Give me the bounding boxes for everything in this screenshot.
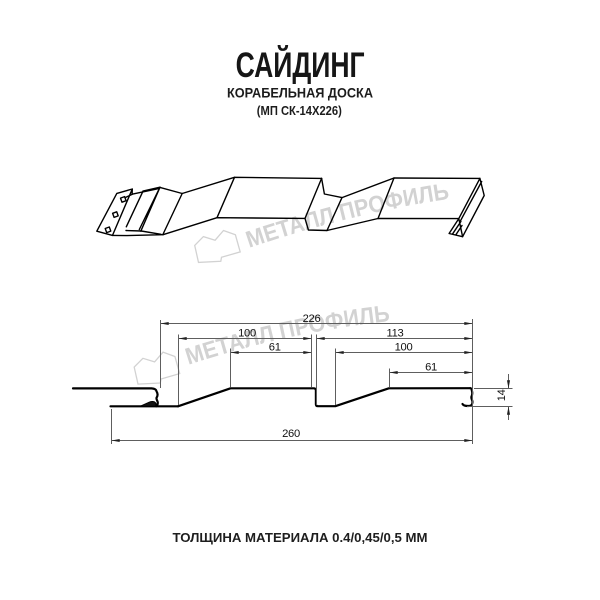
svg-text:100: 100 xyxy=(395,341,413,353)
svg-text:260: 260 xyxy=(282,428,300,440)
svg-text:САЙДИНГ: САЙДИНГ xyxy=(236,45,365,85)
svg-text:61: 61 xyxy=(425,362,437,374)
svg-text:100: 100 xyxy=(238,327,256,339)
svg-text:14: 14 xyxy=(496,389,508,401)
svg-text:226: 226 xyxy=(303,313,321,325)
svg-text:(МП СК-14Х226): (МП СК-14Х226) xyxy=(257,103,342,118)
svg-text:КОРАБЕЛЬНАЯ ДОСКА: КОРАБЕЛЬНАЯ ДОСКА xyxy=(227,86,373,101)
svg-text:ТОЛЩИНА МАТЕРИАЛА 0.4/0,45/0,5: ТОЛЩИНА МАТЕРИАЛА 0.4/0,45/0,5 ММ xyxy=(173,530,428,545)
svg-text:113: 113 xyxy=(387,327,404,339)
svg-text:61: 61 xyxy=(269,341,281,353)
